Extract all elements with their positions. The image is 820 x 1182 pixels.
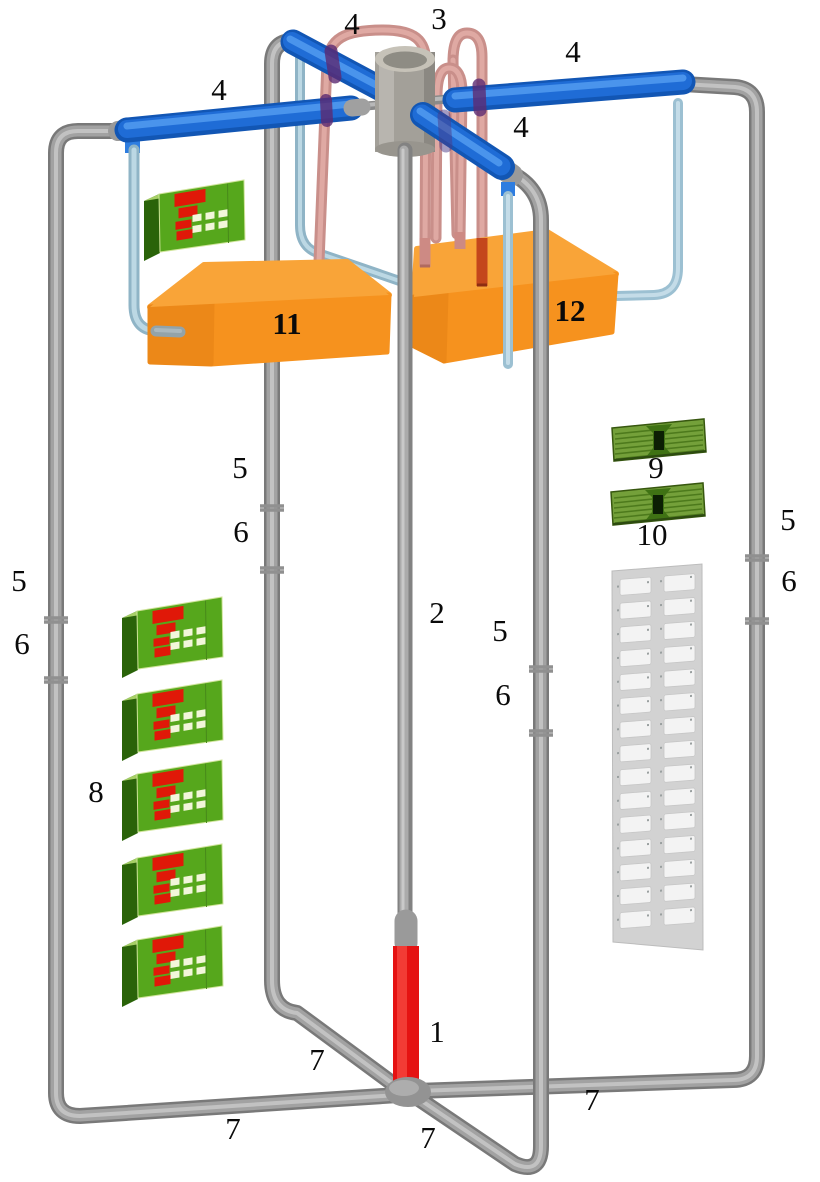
svg-text:4: 4 [513, 109, 529, 144]
svg-text:7: 7 [420, 1120, 436, 1155]
svg-text:7: 7 [309, 1042, 325, 1077]
svg-text:10: 10 [637, 517, 668, 552]
svg-text:5: 5 [492, 613, 508, 648]
svg-text:5: 5 [780, 502, 796, 537]
svg-text:4: 4 [344, 6, 360, 41]
svg-text:1: 1 [429, 1014, 445, 1049]
svg-text:7: 7 [584, 1082, 600, 1117]
svg-text:7: 7 [225, 1111, 241, 1146]
svg-text:6: 6 [14, 626, 30, 661]
svg-text:11: 11 [272, 306, 301, 341]
svg-text:9: 9 [648, 450, 664, 485]
svg-text:12: 12 [555, 293, 586, 328]
svg-text:3: 3 [431, 1, 447, 36]
svg-text:6: 6 [233, 514, 249, 549]
svg-text:4: 4 [565, 34, 581, 69]
svg-text:5: 5 [232, 450, 248, 485]
svg-text:6: 6 [781, 563, 797, 598]
svg-text:2: 2 [429, 595, 445, 630]
svg-text:6: 6 [495, 677, 511, 712]
svg-text:8: 8 [88, 774, 104, 809]
svg-text:5: 5 [11, 563, 27, 598]
svg-text:4: 4 [211, 72, 227, 107]
